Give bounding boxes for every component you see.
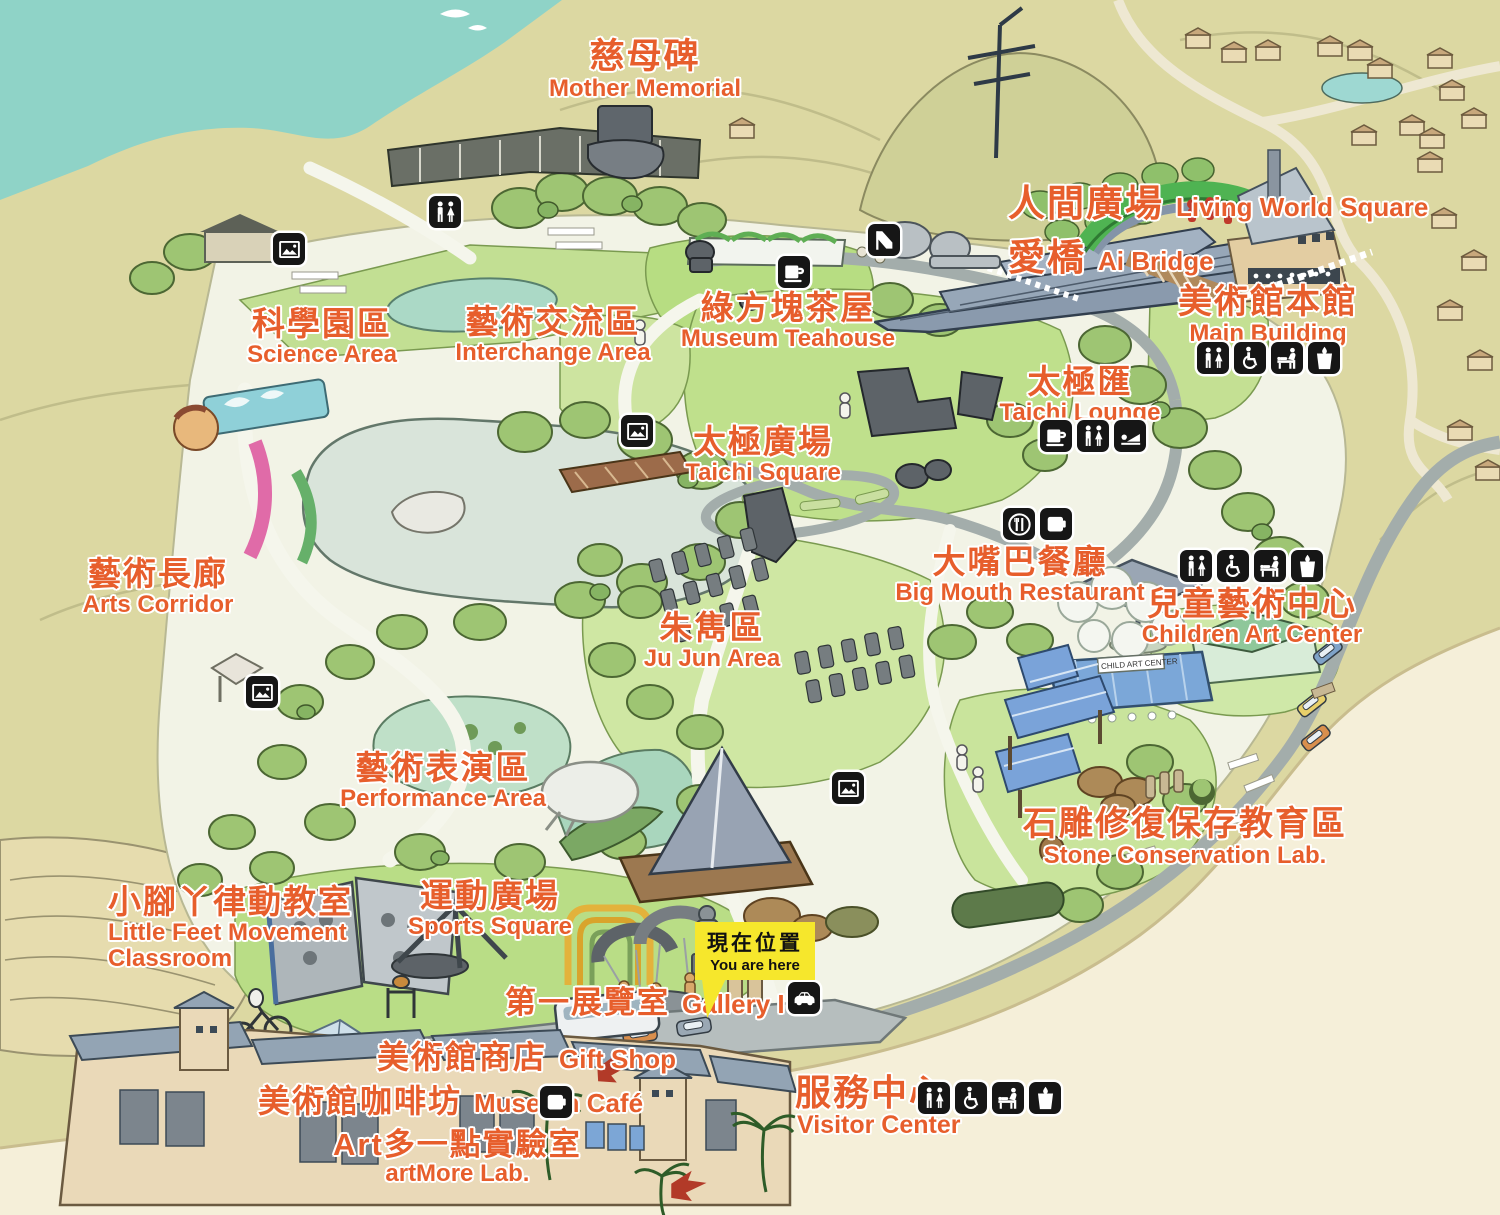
nursing-room-icon [1271,342,1303,374]
label-performance-area: 藝術表演區 Performance Area [340,750,546,812]
taichi-lounge-facility-icons [1040,420,1146,452]
label-big-mouth-restaurant: 大嘴巴餐廳 Big Mouth Restaurant [895,544,1144,606]
label-en: Ju Jun Area [644,646,781,672]
label-zh: 朱雋區 [644,610,781,646]
wheelchair-icon [955,1082,987,1114]
taichi-photo-icon-row [621,415,653,447]
label-artmore-lab: Art多一點實驗室 artMore Lab. [333,1128,582,1187]
parking-icon [788,982,820,1014]
label-children-art-center: 兒童藝術中心 Children Art Center [1142,586,1362,648]
label-zh: 藝術交流區 [455,304,650,340]
restroom-icon [1197,342,1229,374]
label-zh: 運動廣場 [408,878,572,914]
label-en-line2: Classroom [108,946,353,972]
cafe-icon [778,256,810,288]
label-en: Children Art Center [1142,622,1362,648]
marker-zh: 現在位置 [707,927,803,957]
drinking-water-icon [1029,1082,1061,1114]
label-en: Visitor Center [797,1111,960,1139]
museum-cafe-facility-icons [540,1086,572,1118]
label-living-world-square: 人間廣場 Living World Square [1008,184,1428,224]
main-building-facility-icons [1197,342,1340,374]
label-zh: 人間廣場 [1008,184,1164,224]
label-zh: 小腳丫律動教室 [108,884,353,920]
label-taichi-square: 太極廣場 Taichi Square [685,424,841,486]
label-zh: 大嘴巴餐廳 [895,544,1144,580]
slide-icon-row [868,224,900,256]
label-interchange-area: 藝術交流區 Interchange Area [455,304,650,366]
label-zh: 美術館咖啡坊 [258,1084,462,1119]
performance-photo-icon-row [832,772,864,804]
big-mouth-facility-icons [1003,508,1072,540]
beverage-icon [1040,508,1072,540]
beverage-icon [540,1086,572,1118]
label-en: Interchange Area [455,340,650,366]
nursing-room-icon [1254,550,1286,582]
juming-museum-park-map: CHILD ART CENTER [0,0,1500,1215]
you-are-here-marker: 現在位置 You are here [695,922,815,980]
label-en: Big Mouth Restaurant [895,580,1144,606]
label-en: Science Area [247,342,397,368]
label-zh: 兒童藝術中心 [1142,586,1362,622]
label-zh: 太極匯 [1000,364,1161,400]
gazebo-photo-icon-row [246,676,278,708]
label-zh: 愛橋 [1008,238,1086,278]
label-zh: 第一展覽室 [505,986,670,1019]
restroom-icon [429,196,461,228]
slide-icon [868,224,900,256]
restroom-icon [1180,550,1212,582]
label-zh: 美術館本館 [1178,284,1358,321]
label-en: Arts Corridor [83,592,234,618]
label-zh: 美術館商店 [377,1040,547,1075]
restroom-icon [1077,420,1109,452]
photo-spot-icon [621,415,653,447]
label-en: Living World Square [1176,193,1428,221]
label-zh: 慈母碑 [549,38,741,76]
label-zh: Art多一點實驗室 [333,1128,582,1161]
visitor-center-facility-icons [918,1082,1061,1114]
marker-en: You are here [707,957,803,974]
label-en: Mother Memorial [549,76,741,102]
label-zh: 太極廣場 [685,424,841,460]
teahouse-facility-icons [778,256,810,288]
label-sports-square: 運動廣場 Sports Square [408,878,572,940]
label-taichi-lounge: 太極匯 Taichi Lounge [1000,364,1161,426]
drinking-water-icon [1308,342,1340,374]
label-en: Sports Square [408,914,572,940]
label-en: Performance Area [340,786,546,812]
drinking-water-icon [1291,550,1323,582]
label-zh: 藝術長廊 [83,556,234,592]
label-en: Gift Shop [559,1045,676,1073]
label-zh: 石雕修復保存教育區 [1023,806,1347,843]
lounge-icon [1114,420,1146,452]
label-en: Ai Bridge [1098,247,1214,275]
label-mother-memorial: 慈母碑 Mother Memorial [549,38,741,102]
photo-spot-icon [832,772,864,804]
children-art-facility-icons [1180,550,1323,582]
nursing-room-icon [992,1082,1024,1114]
label-little-feet-classroom: 小腳丫律動教室 Little Feet Movement Classroom [108,884,353,971]
photo-spot-icon [246,676,278,708]
label-en: Taichi Square [685,460,841,486]
label-ai-bridge: 愛橋 Ai Bridge [1008,238,1214,278]
label-en-line1: Little Feet Movement [108,920,353,946]
photo-spot-icon [273,233,305,265]
label-en: Museum Teahouse [681,326,895,352]
label-ju-jun-area: 朱雋區 Ju Jun Area [644,610,781,672]
wheelchair-icon [1234,342,1266,374]
science-photo-icon-row [273,233,305,265]
restaurant-icon [1003,508,1035,540]
label-science-area: 科學園區 Science Area [247,306,397,368]
mother-memorial-monument [588,106,663,178]
science-restroom-icon-row [429,196,461,228]
label-zh: 藝術表演區 [340,750,546,786]
label-museum-cafe: 美術館咖啡坊 Museum Café [258,1084,643,1119]
label-gift-shop: 美術館商店 Gift Shop [377,1040,676,1075]
wheelchair-icon [1217,550,1249,582]
label-arts-corridor: 藝術長廊 Arts Corridor [83,556,234,618]
label-en: Stone Conservation Lab. [1023,843,1347,869]
label-stone-conservation-lab: 石雕修復保存教育區 Stone Conservation Lab. [1023,806,1347,869]
label-en: Gallery I [682,990,785,1018]
label-zh: 科學園區 [247,306,397,342]
label-en: artMore Lab. [333,1161,582,1187]
cafe-icon [1040,420,1072,452]
label-museum-teahouse: 綠方塊茶屋 Museum Teahouse [681,290,895,352]
label-gallery-one: 第一展覽室 Gallery I [505,986,785,1019]
parking-icon-row [788,982,820,1014]
label-main-building: 美術館本館 Main Building [1178,284,1358,347]
label-visitor-center-en: Visitor Center [797,1112,960,1139]
restroom-icon [918,1082,950,1114]
label-zh: 綠方塊茶屋 [681,290,895,326]
